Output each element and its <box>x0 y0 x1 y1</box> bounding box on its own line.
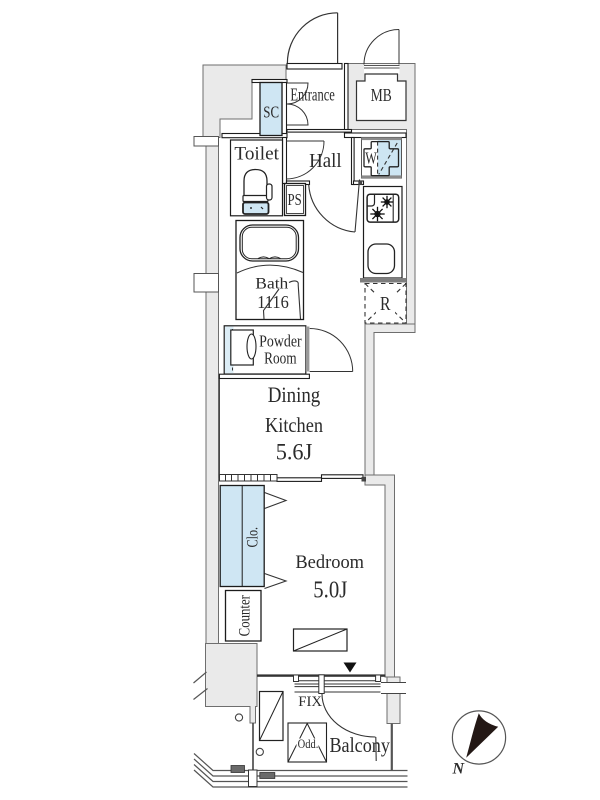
svg-text:Kitchen: Kitchen <box>265 413 323 437</box>
svg-text:Dining: Dining <box>268 382 321 407</box>
svg-text:Odd.: Odd. <box>298 737 319 751</box>
svg-text:Counter: Counter <box>237 594 254 636</box>
svg-text:PS: PS <box>288 190 302 209</box>
svg-text:MB: MB <box>371 85 392 105</box>
svg-text:Balcony: Balcony <box>329 733 390 757</box>
svg-text:5.0J: 5.0J <box>313 578 347 604</box>
svg-text:R: R <box>380 293 391 315</box>
svg-text:Bath: Bath <box>255 276 288 293</box>
svg-text:1116: 1116 <box>257 292 289 312</box>
svg-text:5.6J: 5.6J <box>276 440 313 465</box>
svg-text:Toilet: Toilet <box>234 144 279 165</box>
svg-text:Entrance: Entrance <box>290 84 335 104</box>
svg-text:SC: SC <box>263 103 279 122</box>
svg-text:Room: Room <box>264 348 297 367</box>
svg-text:FIX: FIX <box>298 694 322 710</box>
svg-text:Bedroom: Bedroom <box>295 553 364 573</box>
svg-text:W: W <box>365 148 377 167</box>
svg-text:Hall: Hall <box>309 150 342 172</box>
svg-text:N: N <box>452 761 466 778</box>
svg-text:Clo.: Clo. <box>245 527 262 548</box>
